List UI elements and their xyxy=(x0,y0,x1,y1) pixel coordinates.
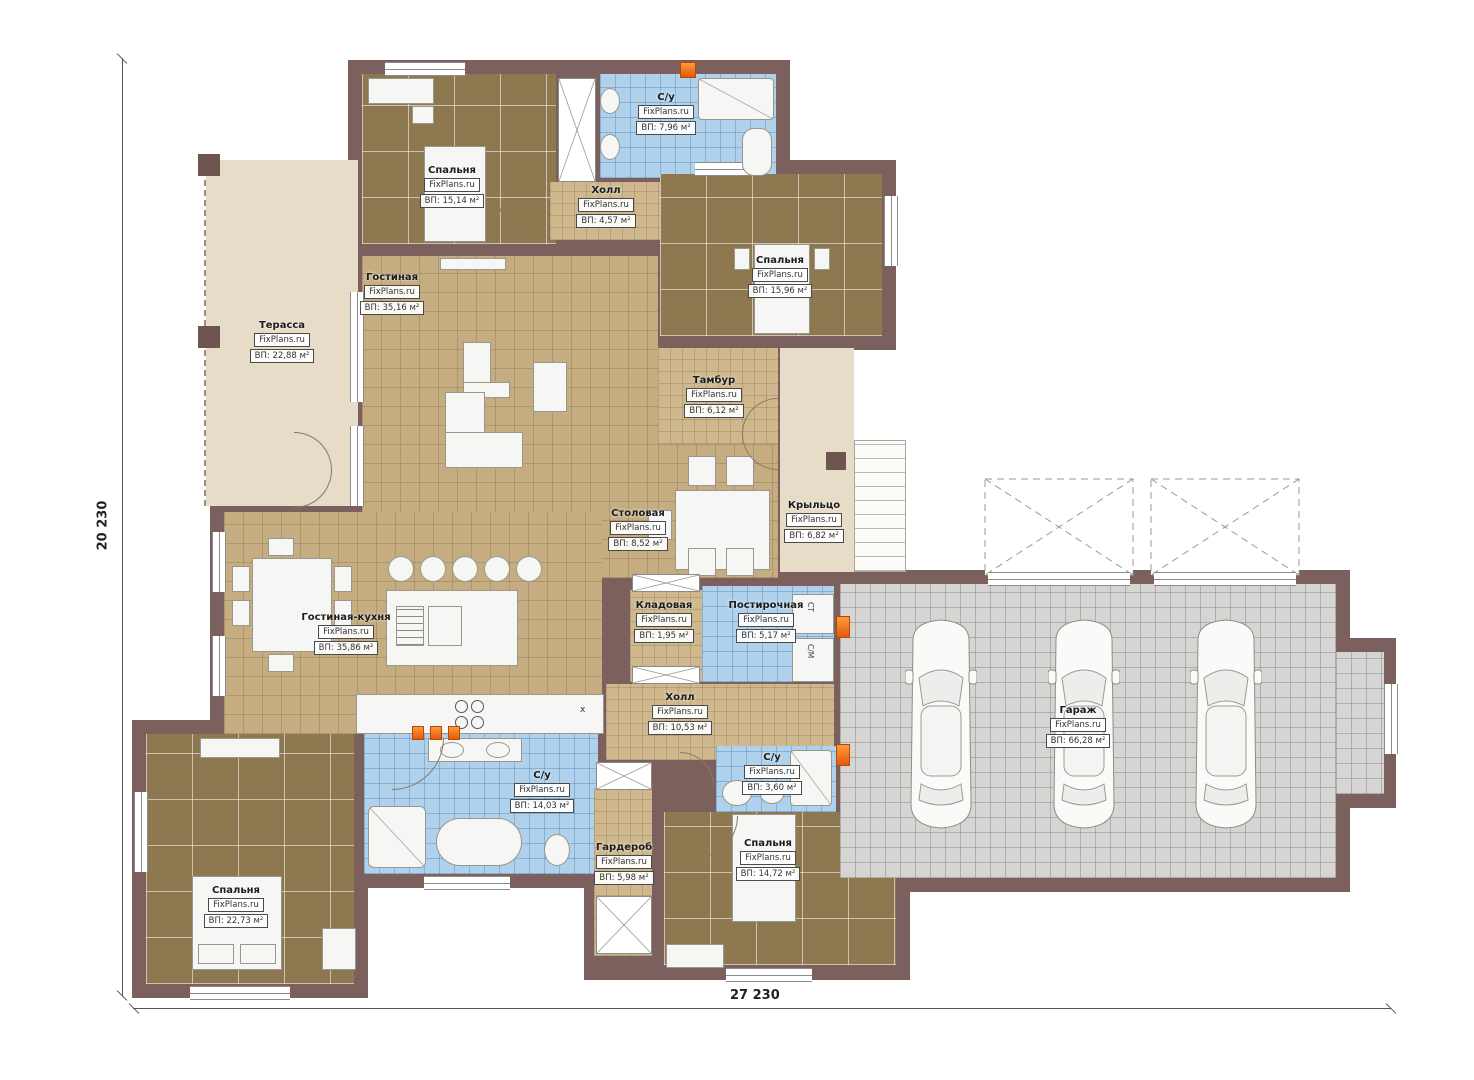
bar-stool xyxy=(388,556,414,582)
dresser xyxy=(368,78,434,104)
room-label-hall-top: Холл FixPlans.ru ВП: 4,57 м² xyxy=(558,185,654,228)
shaft-top xyxy=(558,78,596,182)
dimension-label-bottom: 27 230 xyxy=(730,988,780,1003)
canopy-frame-left xyxy=(984,478,1134,576)
sink xyxy=(600,88,620,114)
fridge-mark: х xyxy=(580,705,585,715)
garage-bump-floor xyxy=(1336,652,1384,794)
window xyxy=(424,876,510,890)
room-label-living: Гостиная FixPlans.ru ВП: 35,16 м² xyxy=(340,272,444,315)
room-label-bath-big: С/у FixPlans.ru ВП: 14,03 м² xyxy=(492,770,592,813)
chair xyxy=(334,566,352,592)
room-label-laundry: Постирочная FixPlans.ru ВП: 5,17 м² xyxy=(714,600,818,643)
floorplan-canvas: х СТ С/М Спальня FixPlans.ru ВП: 15,14 м… xyxy=(0,0,1474,1080)
bathtub xyxy=(436,818,522,866)
room-label-garage: Гараж FixPlans.ru ВП: 66,28 м² xyxy=(1028,705,1128,748)
window xyxy=(134,792,148,872)
kitchen-counter xyxy=(356,694,604,734)
dimension-line-bottom xyxy=(133,1008,1391,1009)
room-label-wc-small: С/у FixPlans.ru ВП: 3,60 м² xyxy=(726,752,818,795)
light-dot-icon xyxy=(430,726,442,740)
bar-stool xyxy=(516,556,542,582)
garage-door-opening xyxy=(1154,572,1296,586)
chair xyxy=(688,548,716,576)
room-label-kitchen-living: Гостиная-кухня FixPlans.ru ВП: 35,86 м² xyxy=(288,612,404,655)
chair xyxy=(268,538,294,556)
shower xyxy=(368,806,426,868)
room-label-dining: Столовая FixPlans.ru ВП: 8,52 м² xyxy=(592,508,684,551)
room-label-tambour: Тамбур FixPlans.ru ВП: 6,12 м² xyxy=(664,375,764,418)
armchair xyxy=(533,362,567,412)
chair xyxy=(726,456,754,486)
dimension-label-left: 20 230 xyxy=(95,501,110,551)
sink xyxy=(600,134,620,160)
radiator-icon xyxy=(836,744,850,766)
storage-shelf xyxy=(632,574,700,592)
window xyxy=(212,532,226,592)
pillow xyxy=(240,944,276,964)
room-label-bedroom-bl: Спальня FixPlans.ru ВП: 22,73 м² xyxy=(184,885,288,928)
chair xyxy=(688,456,716,486)
window xyxy=(884,196,898,266)
bar-stool xyxy=(452,556,478,582)
bar-stool xyxy=(484,556,510,582)
washer-label: С/М xyxy=(806,644,815,658)
pillow xyxy=(198,944,234,964)
room-label-bedroom-bm: Спальня FixPlans.ru ВП: 14,72 м² xyxy=(716,838,820,881)
room-label-terrace: Терасса FixPlans.ru ВП: 22,88 м² xyxy=(232,320,332,363)
toilet xyxy=(544,834,570,866)
room-label-porch: Крыльцо FixPlans.ru ВП: 6,82 м² xyxy=(764,500,864,543)
canopy-frame-right xyxy=(1150,478,1300,576)
porch-pillar xyxy=(826,452,846,470)
window xyxy=(385,62,465,76)
radiator-icon xyxy=(836,616,850,638)
light-dot-icon xyxy=(448,726,460,740)
bar-stool xyxy=(420,556,446,582)
bathtub xyxy=(742,128,772,176)
window xyxy=(726,968,812,982)
nightstand xyxy=(322,928,356,970)
car xyxy=(905,614,977,834)
wardrobe-shelf xyxy=(596,896,652,954)
sink xyxy=(486,742,510,758)
terrace-pillar xyxy=(198,154,220,176)
boiler-icon xyxy=(680,62,696,78)
room-label-bedroom-tl: Спальня FixPlans.ru ВП: 15,14 м² xyxy=(400,165,504,208)
room-label-hall-mid: Холл FixPlans.ru ВП: 10,53 м² xyxy=(630,692,730,735)
tv-stand xyxy=(440,258,506,270)
chair xyxy=(726,548,754,576)
window xyxy=(190,986,290,1000)
window xyxy=(212,636,226,696)
window xyxy=(350,426,364,506)
chair xyxy=(268,654,294,672)
garage-door-opening xyxy=(988,572,1130,586)
dresser xyxy=(200,738,280,758)
dresser xyxy=(666,944,724,968)
room-label-bath-top: С/у FixPlans.ru ВП: 7,96 м² xyxy=(618,92,714,135)
wardrobe-shelf xyxy=(596,762,652,790)
dimension-line-left xyxy=(122,58,123,996)
window xyxy=(1384,684,1398,754)
terrace-pillar xyxy=(198,326,220,348)
chair xyxy=(232,566,250,592)
sofa xyxy=(445,432,523,468)
car xyxy=(1190,614,1262,834)
room-label-wardrobe: Гардероб FixPlans.ru ВП: 5,98 м² xyxy=(588,842,660,885)
storage-shelf xyxy=(632,666,700,684)
nightstand xyxy=(412,106,434,124)
light-dot-icon xyxy=(412,726,424,740)
kitchen-sink xyxy=(428,606,462,646)
chair xyxy=(232,600,250,626)
room-label-bedroom-tr: Спальня FixPlans.ru ВП: 15,96 м² xyxy=(728,255,832,298)
room-label-storage: Кладовая FixPlans.ru ВП: 1,95 м² xyxy=(616,600,712,643)
